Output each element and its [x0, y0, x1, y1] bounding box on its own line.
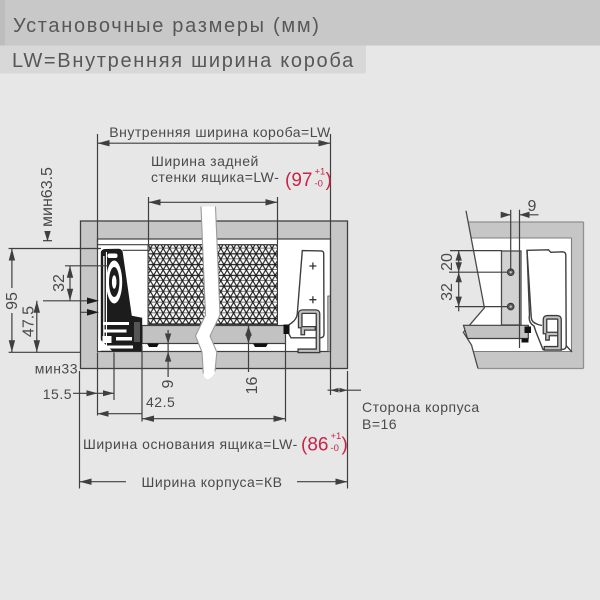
svg-text:В=16: В=16 — [362, 416, 397, 432]
svg-text:32: 32 — [51, 274, 68, 292]
svg-text:20: 20 — [439, 253, 456, 271]
svg-text:+1: +1 — [315, 167, 326, 178]
svg-text:(86: (86 — [301, 435, 328, 456]
svg-text:(97: (97 — [285, 170, 312, 191]
svg-text:LW=Внутренняя ширина короба: LW=Внутренняя ширина короба — [12, 50, 355, 72]
svg-text:-0: -0 — [315, 179, 323, 190]
svg-text:Установочные размеры (мм): Установочные размеры (мм) — [13, 15, 321, 37]
svg-text:15.5: 15.5 — [43, 386, 72, 402]
svg-text:стенки ящика=LW-: стенки ящика=LW- — [151, 169, 279, 185]
svg-text:9: 9 — [160, 379, 177, 388]
svg-text:+1: +1 — [331, 431, 342, 442]
svg-text:32: 32 — [439, 283, 456, 301]
svg-text:Ширина корпуса=КВ: Ширина корпуса=КВ — [142, 474, 283, 490]
svg-text:Сторона корпуса: Сторона корпуса — [362, 399, 480, 415]
svg-text:Внутренняя ширина короба=LW: Внутренняя ширина короба=LW — [109, 124, 331, 140]
svg-text:42.5: 42.5 — [146, 394, 175, 410]
svg-text:16: 16 — [244, 377, 261, 395]
svg-text:95: 95 — [4, 292, 21, 310]
svg-text:): ) — [342, 435, 348, 456]
svg-text:-0: -0 — [331, 443, 339, 454]
svg-text:): ) — [326, 170, 332, 191]
svg-text:мин63.5: мин63.5 — [39, 167, 56, 227]
svg-text:мин33: мин33 — [35, 361, 78, 377]
svg-text:Ширина задней: Ширина задней — [151, 153, 259, 169]
svg-text:Ширина основания ящика=LW-: Ширина основания ящика=LW- — [83, 436, 298, 452]
